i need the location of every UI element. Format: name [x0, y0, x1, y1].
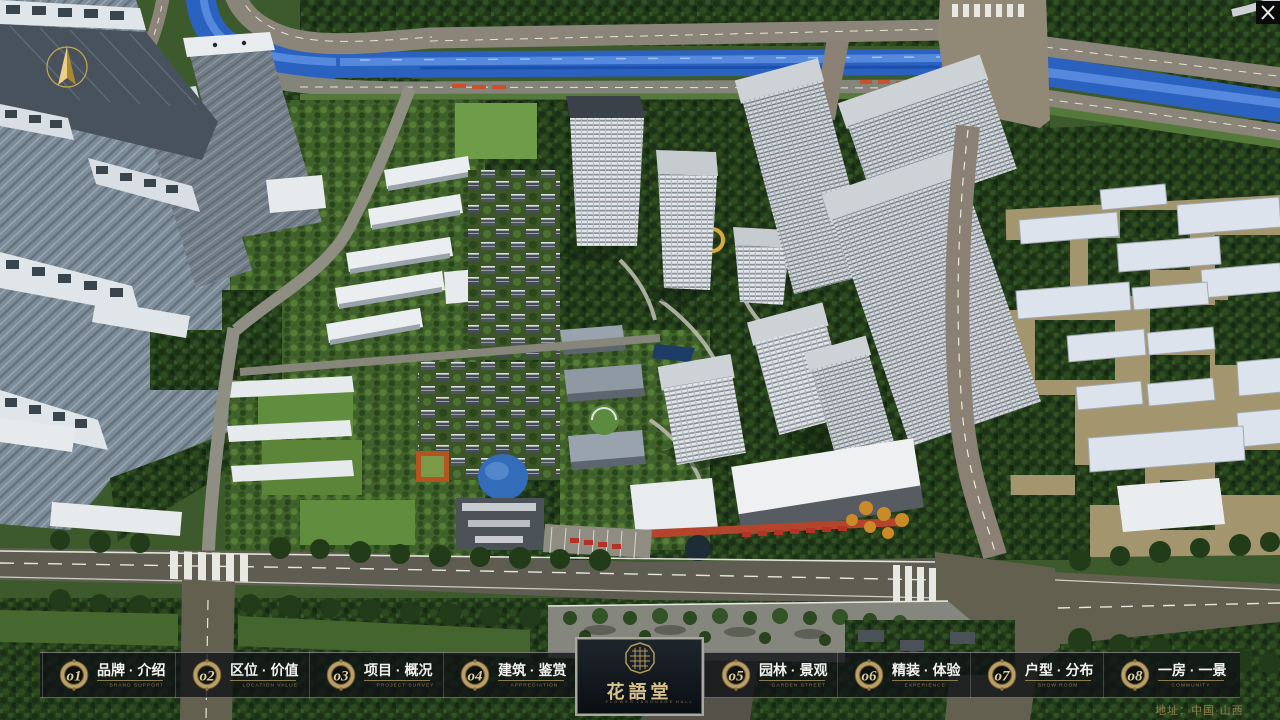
- svg-text:o3: o3: [334, 669, 350, 685]
- svg-text:o2: o2: [200, 669, 216, 685]
- svg-text:o4: o4: [468, 669, 484, 685]
- svg-text:o7: o7: [995, 669, 1011, 685]
- svg-text:o8: o8: [1128, 669, 1144, 685]
- svg-text:o6: o6: [862, 669, 878, 685]
- svg-text:o5: o5: [729, 669, 745, 685]
- svg-text:o1: o1: [67, 669, 82, 685]
